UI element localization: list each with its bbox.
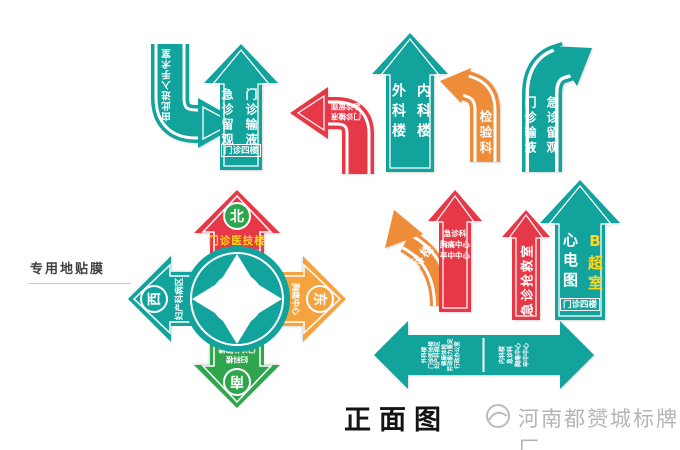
double-arrow-icon [372,318,596,392]
arrow-text-left-column: 急诊留观 [221,88,233,148]
up-arrow-icon [372,33,448,172]
sign-hook-arrow-left-red: 门诊输液 急诊留观 [286,82,378,174]
direction-badge-south: 南 [223,368,251,396]
branch-up-left-arrow-icon [440,68,504,162]
arrow-text-line: 卒中中心 [432,250,478,261]
arrow-text: 由此进入手术室 [163,48,173,122]
double-arrow-left-text: 外科楼 门诊医技楼 妇产科病区 健康体检 劳动能力鉴定 行政办公室 [422,332,468,378]
arrow-text-line: 胸痛中心 [432,239,478,250]
sign-up-arrow-emergency-centers: 急诊科 胸痛中心 卒中中心 [428,190,482,312]
arrow-text: 急诊抢救室 [517,235,536,325]
arrow-text-block: 急诊科 胸痛中心 卒中中心 [432,228,478,261]
dest-line: 劳动能力鉴定 [448,332,455,378]
double-arrow-right-text: 内科楼 急诊科 胸痛中心 卒中中心 [499,332,545,378]
sign-branch-arrow-laboratory: 检验科 [440,68,504,162]
direction-badge-west: 西 [140,285,168,313]
dest-line: 妇产科病区 [435,332,442,378]
signage-front-view-sheet: 由此进入手术室 急诊留观 门诊输液 门诊四楼 门诊输液 急诊留观 外科楼 [0,0,680,450]
dest-line: 外科楼 [422,332,429,378]
direction-badge-east: 东 [306,285,334,313]
sign-up-arrow-surgery-internal: 外科楼 内科楼 [372,33,448,172]
dest-line: 内科楼 [499,332,507,378]
arrow-text: 检验科 [478,110,491,157]
leader-line [28,283,131,284]
sign-double-headed-arrow: 外科楼 门诊医技楼 妇产科病区 健康体检 劳动能力鉴定 行政办公室 内科楼 急诊… [372,318,596,392]
east-line: 胸痛中心 [290,256,301,342]
south-line: 妇科楼 [194,355,280,365]
arrow-text-right-column: 内科楼 [416,83,430,143]
arrow-text-left-column: 心电图 [562,232,577,292]
arrow-text-right-column: 门诊输液 [245,88,257,148]
dest-line: 急诊科 [507,332,515,378]
hook-left-arrow-icon [286,82,378,174]
sign-up-arrow-ecg-ultrasound: 心电图 B超室 门诊四楼 [540,180,620,320]
arrow-text-right-column: B超室 [587,232,602,295]
arrow-text-line: 急诊科 [432,228,478,239]
compass-center-disc [183,245,291,353]
material-note: 专用地贴膜 [30,258,105,277]
arrow-text-line2: 急诊留观 [328,102,364,112]
manufacturer-name: 河南都赟城标牌厂 [518,403,680,450]
direction-badge-north: 北 [223,202,251,230]
arrow-text-right-column: 急诊留观 [546,96,558,156]
arrow-text-line1: 门诊输液 [328,112,364,122]
floor-label: 门诊四楼 [560,298,600,311]
arrow-text-left-column: 外科楼 [391,83,405,143]
dest-line: 胸痛中心 [515,332,523,378]
sign-compass-floor-decal: 北 门诊医技楼 （CT核磁 放射 彩超 化验） 东 胸痛中心 急诊科 卒中中心 … [128,190,346,408]
arrow-text-block: 门诊输液 急诊留观 [328,102,364,121]
compass-rose-icon [183,245,291,353]
arrow-text-left-column: 门诊输液 [524,96,536,156]
dest-line: 行政办公室 [455,332,462,378]
manufacturer-logo-icon [482,400,514,432]
sign-up-arrow-infusion-observation: 急诊留观 门诊输液 门诊四楼 [204,44,278,170]
floor-label: 门诊四楼 [221,144,261,157]
manufacturer-watermark: 河南都赟城标牌厂 [482,398,680,432]
view-caption: 正面图 [344,398,449,437]
dest-line: 卒中中心 [523,332,531,378]
sign-branch-arrow-infusion-observation: 门诊输液 急诊留观 [512,40,594,172]
